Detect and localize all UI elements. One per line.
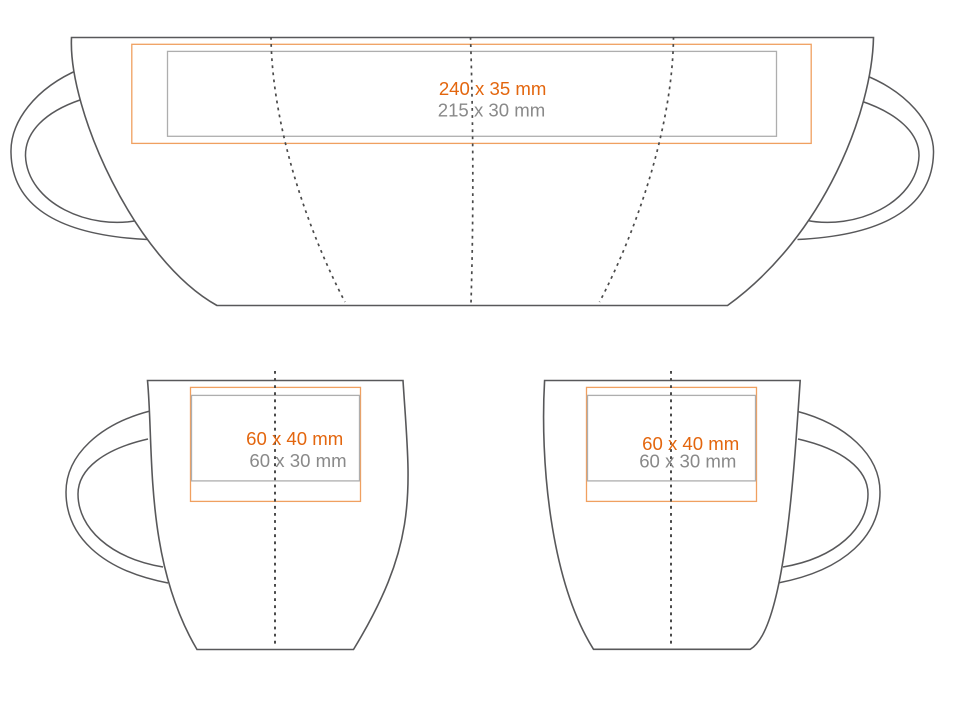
svg-text:240 x 35 mm: 240 x 35 mm bbox=[439, 78, 546, 99]
svg-text:215 x 30 mm: 215 x 30 mm bbox=[438, 100, 545, 121]
svg-text:60 x 30 mm: 60 x 30 mm bbox=[639, 450, 736, 471]
svg-text:60 x 40 mm: 60 x 40 mm bbox=[246, 428, 343, 449]
svg-text:60 x 30 mm: 60 x 30 mm bbox=[249, 450, 346, 471]
